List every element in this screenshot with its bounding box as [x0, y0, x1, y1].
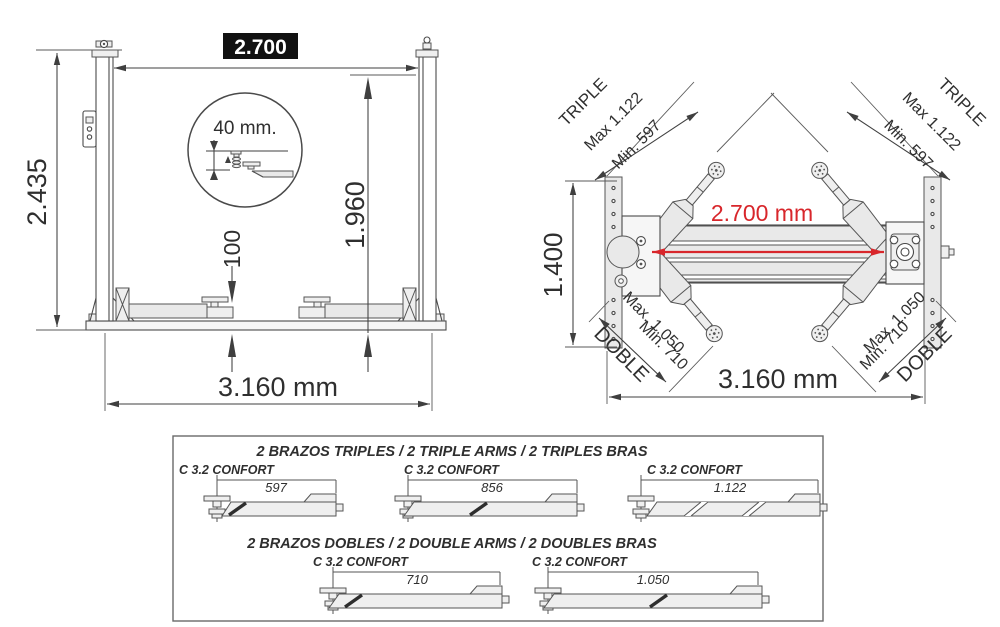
- depth-label: 1.400: [538, 232, 568, 297]
- model-label: C 3.2 CONFORT: [179, 463, 275, 477]
- length-label: 597: [265, 480, 287, 495]
- right-arm: [299, 288, 416, 321]
- inner-distance-label: 2.700 mm: [711, 200, 813, 226]
- dim-column-distance: 2.700: [114, 33, 418, 68]
- model-label: C 3.2 CONFORT: [532, 555, 628, 569]
- top-base-width-label: 3.160 mm: [718, 364, 838, 394]
- pad-height-label: 100: [219, 230, 245, 268]
- left-column: [90, 40, 134, 321]
- lift-height-label: 1.960: [340, 181, 370, 249]
- triple-arms-title: 2 BRAZOS TRIPLES / 2 TRIPLE ARMS / 2 TRI…: [255, 444, 647, 460]
- front-view: 2.435 2.700 40 mm.: [22, 33, 446, 411]
- dim-triple-right: TRIPLE Max 1.122 Min. 597: [771, 74, 990, 180]
- detail-note-label: 40 mm.: [213, 118, 276, 139]
- column-distance-label: 2.700: [234, 36, 287, 59]
- left-arm: [116, 288, 233, 321]
- top-view: TRIPLE Max 1.122 Min. 597 TRIPLE Max 1.1…: [538, 74, 990, 404]
- right-column: [398, 37, 442, 321]
- power-unit-box: [83, 111, 96, 147]
- dim-front-base-width: 3.160 mm: [105, 333, 432, 411]
- base-plate: [86, 321, 446, 330]
- front-base-width-label: 3.160 mm: [218, 372, 338, 402]
- detail-circle: 40 mm.: [188, 93, 302, 207]
- double-arms-title: 2 BRAZOS DOBLES / 2 DOUBLE ARMS / 2 DOUB…: [246, 536, 657, 552]
- dim-triple-left: TRIPLE Max 1.122 Min. 597: [555, 74, 774, 180]
- total-height-label: 2.435: [22, 158, 52, 226]
- lift-technical-drawing: 2.435 2.700 40 mm.: [0, 0, 1000, 627]
- arms-table: 2 BRAZOS TRIPLES / 2 TRIPLE ARMS / 2 TRI…: [173, 436, 827, 621]
- right-column-plan: [924, 177, 941, 348]
- drawing-canvas: 2.435 2.700 40 mm.: [0, 0, 1000, 627]
- model-label: C 3.2 CONFORT: [647, 463, 743, 477]
- model-label: C 3.2 CONFORT: [313, 555, 409, 569]
- length-label: 856: [481, 480, 503, 495]
- model-label: C 3.2 CONFORT: [404, 463, 500, 477]
- length-label: 1.122: [714, 480, 747, 495]
- length-label: 1.050: [637, 572, 670, 587]
- right-carriage: [886, 222, 954, 284]
- length-label: 710: [406, 572, 428, 587]
